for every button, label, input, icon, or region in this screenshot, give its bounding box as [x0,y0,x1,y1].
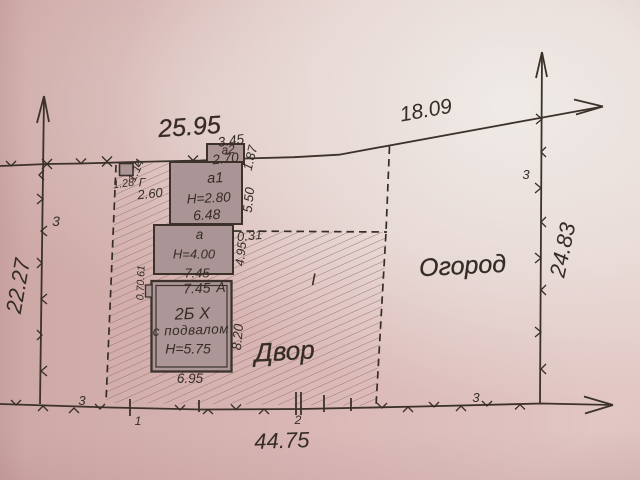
svg-text:1: 1 [135,414,142,428]
svg-text:Н=4.00: Н=4.00 [173,247,216,262]
svg-text:А: А [215,279,226,295]
svg-text:3: 3 [472,390,480,405]
svg-text:25.95: 25.95 [156,111,221,143]
svg-text:3: 3 [522,167,530,182]
svg-text:5.50: 5.50 [240,186,258,213]
svg-text:Огород: Огород [418,250,507,283]
svg-text:а1: а1 [207,170,224,187]
svg-text:с подвалом: с подвалом [152,321,229,339]
svg-text:а: а [196,227,204,242]
svg-text:4.95: 4.95 [233,241,249,267]
svg-text:3: 3 [78,393,86,408]
svg-text:8.20: 8.20 [229,323,246,351]
svg-text:7.45: 7.45 [183,280,211,297]
svg-text:7.45: 7.45 [184,266,210,281]
svg-text:Н=5.75: Н=5.75 [165,341,211,357]
svg-text:6.48: 6.48 [193,206,221,223]
svg-text:2Б X: 2Б X [173,304,211,323]
svg-text:3: 3 [52,213,60,229]
svg-text:44.75: 44.75 [254,427,311,454]
svg-text:2.70: 2.70 [211,150,240,168]
svg-text:Н=2.80: Н=2.80 [186,189,231,206]
svg-text:2.60: 2.60 [136,185,164,203]
svg-text:0.31: 0.31 [236,227,263,244]
svg-text:Двор: Двор [251,334,316,367]
svg-text:2: 2 [294,413,302,427]
svg-text:I: I [311,270,316,289]
svg-text:6.95: 6.95 [177,371,204,386]
svg-text:0.70.61: 0.70.61 [134,265,147,300]
